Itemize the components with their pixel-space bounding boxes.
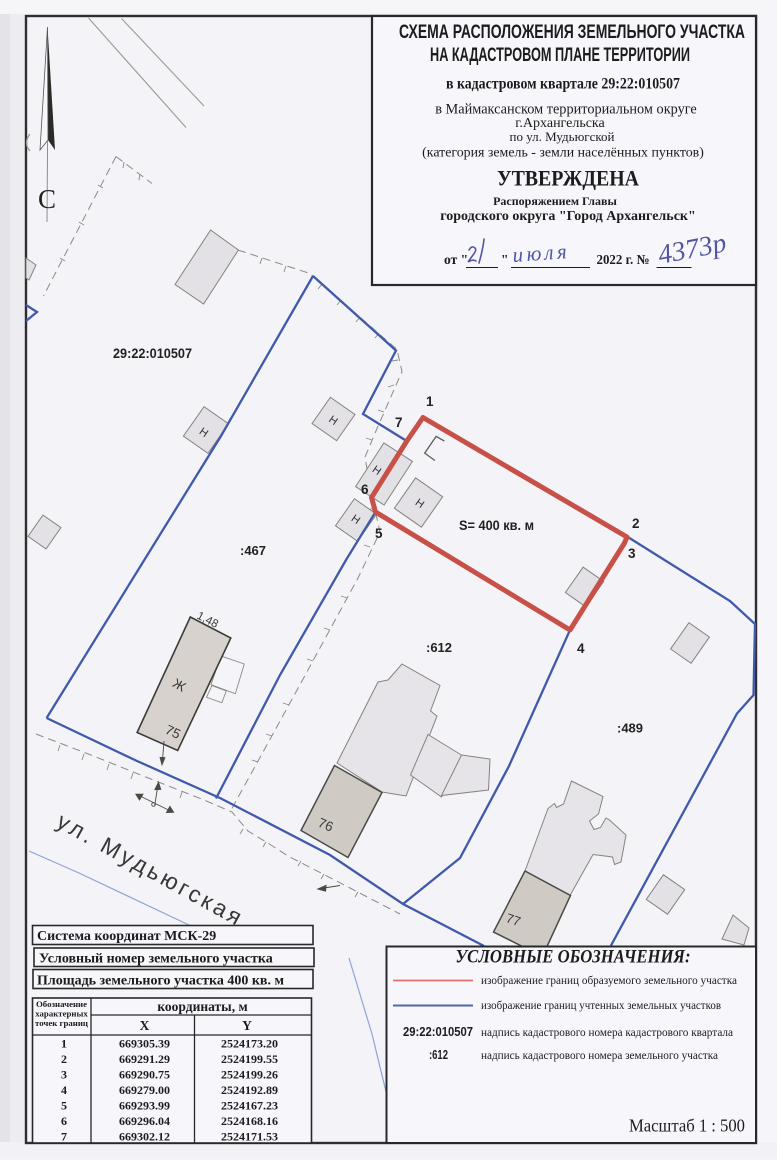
svg-text:669305.39: 669305.39 [119,1036,170,1050]
svg-text:НА КАДАСТРОВОМ ПЛАНЕ ТЕРРИТОРИ: НА КАДАСТРОВОМ ПЛАНЕ ТЕРРИТОРИИ [430,45,690,66]
svg-text:S= 400 кв. м: S= 400 кв. м [459,517,534,533]
svg-text:надпись кадастрового номера ка: надпись кадастрового номера кадастрового… [481,1027,733,1039]
svg-text:УТВЕРЖДЕНА: УТВЕРЖДЕНА [497,166,639,191]
svg-text:изображение границ учтенных зе: изображение границ учтенных земельных уч… [481,1000,722,1012]
svg-text:Распоряжением Главы: Распоряжением Главы [493,194,617,208]
svg-text:1: 1 [61,1036,67,1050]
svg-text:координаты, м: координаты, м [157,999,247,1014]
svg-text:669290.75: 669290.75 [119,1067,170,1081]
svg-text:2524173.20: 2524173.20 [221,1036,278,1050]
svg-text:в кадастровом квартале 29:22:0: в кадастровом квартале 29:22:010507 [446,76,680,93]
svg-text:7: 7 [395,415,403,430]
svg-text:669293.99: 669293.99 [119,1098,170,1112]
svg-text:С: С [38,184,56,214]
svg-text:Y: Y [242,1018,252,1033]
svg-text:изображение границ образуемого: изображение границ образуемого земельног… [481,975,737,987]
svg-text:2: 2 [632,516,640,531]
svg-text:6: 6 [61,1114,67,1128]
svg-text:669302.12: 669302.12 [119,1130,170,1144]
svg-text:июля: июля [512,239,571,267]
svg-text::612: :612 [426,640,452,655]
svg-text:4: 4 [61,1083,67,1097]
svg-text:от ": от " [444,252,468,267]
svg-text:29:22:010507: 29:22:010507 [403,1024,473,1039]
svg-text:Площадь земельного участка 400: Площадь земельного участка 400 кв. м [37,974,284,989]
svg-text:2524199.26: 2524199.26 [221,1067,278,1081]
svg-text:4: 4 [577,641,585,656]
svg-text:точек границ: точек границ [35,1018,88,1028]
svg-text:Система координат МСК-29: Система координат МСК-29 [37,929,216,944]
svg-text:2524192.89: 2524192.89 [221,1083,278,1097]
svg-text::612: :612 [429,1047,448,1062]
svg-text:УСЛОВНЫЕ ОБОЗНАЧЕНИЯ:: УСЛОВНЫЕ ОБОЗНАЧЕНИЯ: [456,947,691,968]
svg-text:1: 1 [426,394,434,409]
svg-text:6: 6 [361,482,369,497]
svg-text::489: :489 [617,721,643,736]
svg-text:669279.00: 669279.00 [119,1083,170,1097]
svg-text:(категория земель - земли насе: (категория земель - земли населённых пун… [422,146,704,161]
svg-text:2524168.16: 2524168.16 [221,1114,278,1128]
svg-text:3: 3 [628,546,636,561]
svg-text:2524167.23: 2524167.23 [221,1098,278,1112]
svg-text:669296.04: 669296.04 [119,1114,170,1128]
svg-text:по ул. Мудьюгской: по ул. Мудьюгской [509,129,614,144]
svg-text:5: 5 [61,1098,67,1112]
svg-text:надпись кадастрового номера зе: надпись кадастрового номера земельного у… [481,1050,718,1062]
svg-text:7: 7 [61,1130,67,1144]
svg-text:2: 2 [61,1052,67,1066]
svg-text:характерных: характерных [35,1009,88,1019]
svg-text:городского округа "Город Архан: городского округа "Город Архангельск" [440,209,696,224]
svg-text:29:22:010507: 29:22:010507 [113,346,192,361]
svg-text:": " [501,252,509,267]
svg-text:3: 3 [61,1067,67,1081]
svg-text::467: :467 [240,543,266,558]
svg-text:5: 5 [375,526,383,541]
svg-text:X: X [140,1018,150,1033]
svg-text:Условный номер земельного учас: Условный номер земельного участка [39,952,273,967]
svg-text:Масштаб 1 : 500: Масштаб 1 : 500 [629,1116,745,1136]
svg-text:2022 г. №: 2022 г. № [597,252,650,267]
svg-text:2524199.55: 2524199.55 [221,1052,278,1066]
svg-text:Обозначение: Обозначение [36,999,87,1009]
svg-text:669291.29: 669291.29 [119,1052,170,1066]
svg-text:СХЕМА РАСПОЛОЖЕНИЯ ЗЕМЕЛЬНОГО: СХЕМА РАСПОЛОЖЕНИЯ ЗЕМЕЛЬНОГО УЧАСТКА [399,22,745,43]
svg-text:2524171.53: 2524171.53 [221,1130,278,1144]
